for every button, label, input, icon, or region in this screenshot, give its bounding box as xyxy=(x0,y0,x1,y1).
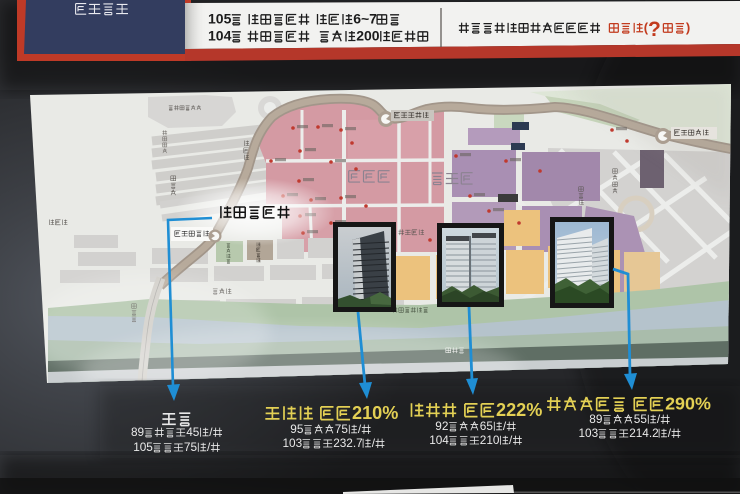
svg-text:104: 104 xyxy=(429,433,449,447)
svg-text:75: 75 xyxy=(335,422,349,436)
svg-text:105: 105 xyxy=(133,440,153,454)
svg-text:45: 45 xyxy=(186,425,200,439)
svg-text:?: ? xyxy=(648,18,661,41)
svg-text:103: 103 xyxy=(283,436,303,450)
svg-text:222%: 222% xyxy=(496,400,542,420)
svg-text:103: 103 xyxy=(579,426,599,440)
svg-text:210%: 210% xyxy=(352,403,398,423)
svg-text:210: 210 xyxy=(480,433,500,447)
svg-text:89: 89 xyxy=(131,425,144,439)
svg-text:214.2: 214.2 xyxy=(629,426,659,440)
svg-text:200: 200 xyxy=(356,28,380,44)
svg-text:89: 89 xyxy=(589,412,602,426)
svg-text:55: 55 xyxy=(634,412,648,426)
svg-text:75: 75 xyxy=(184,440,198,454)
svg-text:104: 104 xyxy=(208,28,232,44)
svg-text:6~7: 6~7 xyxy=(353,11,377,27)
svg-text:95: 95 xyxy=(290,422,304,436)
svg-text:290%: 290% xyxy=(665,394,711,414)
svg-text:232.7: 232.7 xyxy=(333,436,363,450)
svg-text:65: 65 xyxy=(480,419,494,433)
svg-text:92: 92 xyxy=(435,419,448,433)
svg-text:105: 105 xyxy=(208,11,232,27)
svg-text:): ) xyxy=(686,20,690,35)
